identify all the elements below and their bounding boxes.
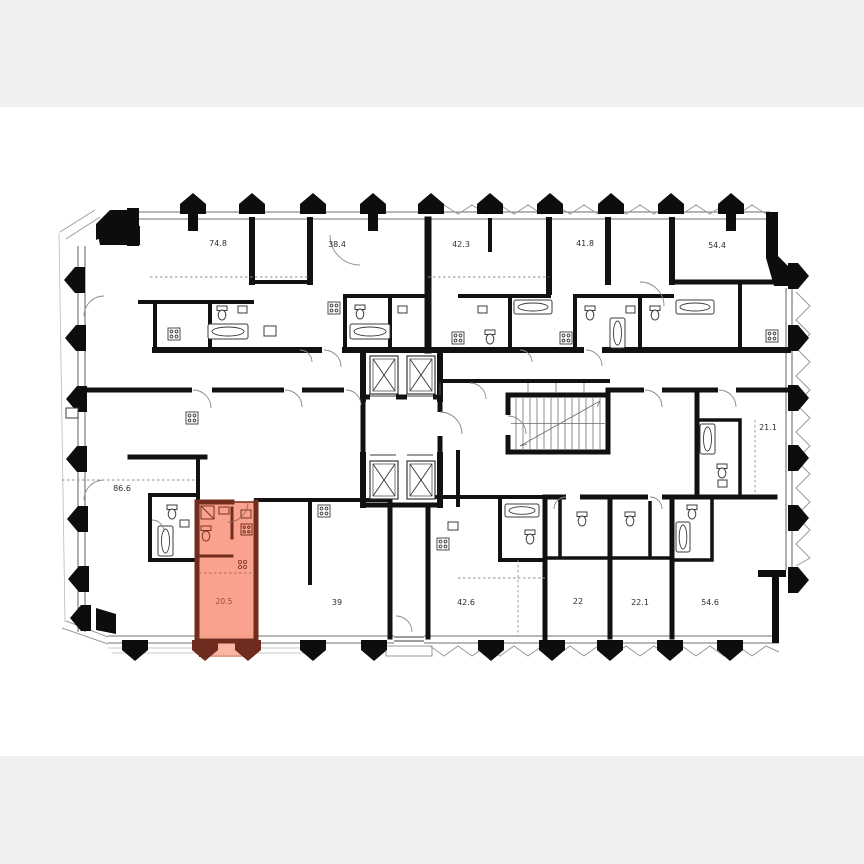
entrance-stoop: [386, 646, 432, 656]
stove: [168, 302, 778, 550]
screenshot-stage: 74.8 38.4 42.3 41.8 54.4 86.6 21.1 20.5 …: [0, 0, 864, 864]
unit-20-5-highlight[interactable]: [192, 502, 261, 661]
room-label-41-8: 41.8: [576, 239, 594, 248]
corner-mass-bottom-right: [772, 574, 779, 643]
elevator-bank-lower: [370, 461, 435, 499]
room-label-21-1: 21.1: [759, 423, 777, 432]
room-label-39: 39: [332, 598, 342, 607]
room-label-54-6: 54.6: [701, 598, 719, 607]
corner-mass-bottom-left: [96, 608, 116, 634]
room-label-38-4: 38.4: [328, 240, 346, 249]
interior-walls: [84, 220, 788, 645]
elevator-bank-upper: [370, 356, 435, 394]
room-label-20-5: 20.5: [216, 597, 233, 606]
room-label-22: 22: [573, 597, 583, 606]
room-label-22-1: 22.1: [631, 598, 649, 607]
room-label-42-3: 42.3: [452, 240, 470, 249]
corner-mass-top-right: [766, 212, 790, 286]
room-label-54-4: 54.4: [708, 241, 726, 250]
room-label-42-6: 42.6: [457, 598, 475, 607]
room-label-86-6: 86.6: [113, 484, 131, 493]
room-label-74-8: 74.8: [209, 239, 227, 248]
floor-plan: 74.8 38.4 42.3 41.8 54.4 86.6 21.1 20.5 …: [0, 0, 864, 864]
